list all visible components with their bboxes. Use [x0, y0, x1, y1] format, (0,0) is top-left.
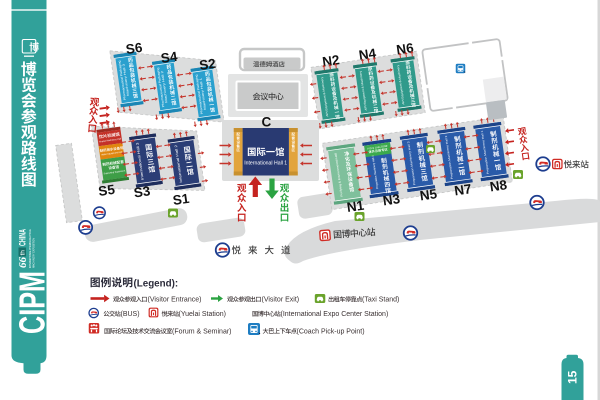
svg-text:S6: S6 [125, 40, 144, 57]
svg-text:N8: N8 [489, 177, 509, 194]
svg-text:CHINA: CHINA [18, 229, 29, 246]
svg-text:CIPM: CIPM [12, 271, 53, 334]
svg-text:International Hall 1: International Hall 1 [244, 161, 287, 167]
svg-text:(Taxi Stand): (Taxi Stand) [362, 297, 399, 304]
svg-text:(BUS): (BUS) [121, 311, 140, 318]
svg-text:(Visitor Exit): (Visitor Exit) [262, 297, 300, 304]
svg-text:(International Expo Center Sta: (International Expo Center Station) [281, 311, 389, 318]
svg-text:15: 15 [566, 370, 580, 384]
svg-text:N3: N3 [382, 191, 402, 208]
svg-text:S2: S2 [198, 56, 216, 73]
svg-text:(Coach Pick-up Point): (Coach Pick-up Point) [297, 328, 365, 335]
svg-text:S3: S3 [133, 183, 152, 200]
svg-text:S4: S4 [160, 49, 179, 66]
svg-text:C: C [262, 115, 272, 130]
svg-text:S1: S1 [172, 191, 191, 208]
svg-text:(Forum & Seminar): (Forum & Seminar) [172, 328, 232, 335]
svg-text:MACHINERY EXPOSITION: MACHINERY EXPOSITION [32, 238, 36, 268]
svg-text:N7: N7 [453, 181, 472, 198]
svg-text:S5: S5 [97, 182, 116, 199]
svg-text:N5: N5 [419, 186, 439, 203]
svg-text:th: th [20, 250, 27, 256]
svg-text:(Yuelai Station): (Yuelai Station) [179, 311, 226, 318]
svg-text:(Visitor Entrance): (Visitor Entrance) [148, 297, 202, 304]
svg-text:(Legend):: (Legend): [134, 278, 179, 289]
